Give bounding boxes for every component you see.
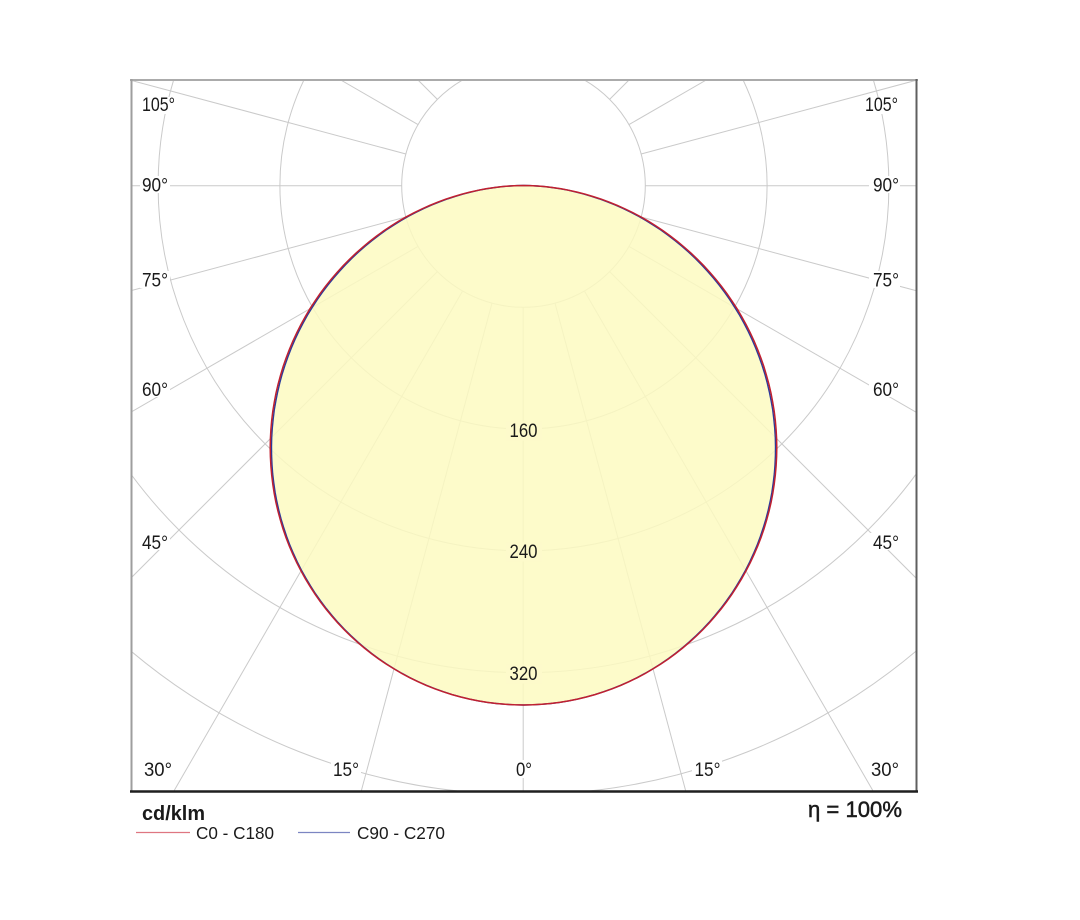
svg-text:45°: 45°	[142, 533, 168, 554]
svg-text:75°: 75°	[142, 271, 168, 292]
svg-text:15°: 15°	[695, 760, 721, 781]
svg-text:105°: 105°	[865, 95, 898, 116]
svg-text:60°: 60°	[142, 380, 168, 401]
svg-text:45°: 45°	[873, 533, 899, 554]
svg-text:30°: 30°	[144, 760, 172, 781]
svg-text:90°: 90°	[873, 176, 899, 197]
svg-text:C90 - C270: C90 - C270	[357, 823, 445, 843]
svg-text:cd/klm: cd/klm	[142, 803, 205, 825]
svg-text:60°: 60°	[873, 380, 899, 401]
svg-text:75°: 75°	[873, 271, 899, 292]
svg-text:320: 320	[510, 664, 538, 685]
svg-text:15°: 15°	[333, 760, 359, 781]
svg-text:160: 160	[510, 421, 538, 442]
svg-text:0°: 0°	[516, 760, 532, 781]
svg-text:105°: 105°	[142, 95, 175, 116]
svg-text:η = 100%: η = 100%	[808, 797, 902, 822]
svg-text:90°: 90°	[142, 176, 168, 197]
svg-text:30°: 30°	[871, 760, 899, 781]
svg-text:C0 - C180: C0 - C180	[196, 823, 274, 843]
svg-text:240: 240	[510, 542, 538, 563]
